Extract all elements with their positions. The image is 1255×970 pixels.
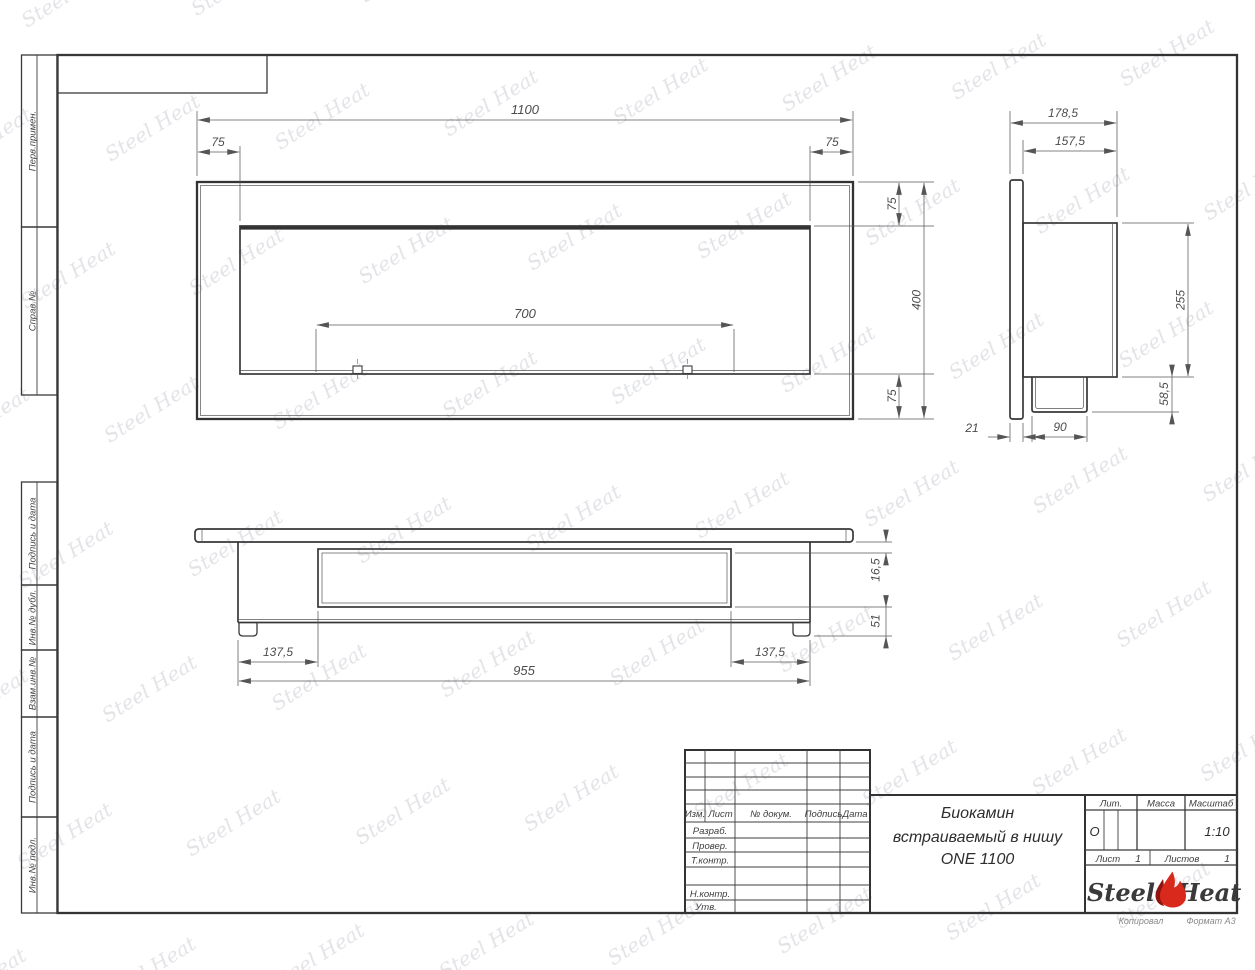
lit-label: Лит.	[1099, 799, 1122, 810]
svg-text:1100: 1100	[511, 102, 540, 117]
margin-label: Подпись и дата	[28, 731, 39, 803]
row-razrab: Разраб.	[693, 826, 727, 837]
row-prover: Провер.	[692, 841, 727, 852]
margin-label: Перв.примен.	[28, 111, 39, 172]
sheets-label: Листов	[1164, 854, 1200, 865]
row-utv: Утв.	[694, 902, 717, 913]
sheet-value: 1	[1135, 853, 1141, 865]
copied-note: Копировал	[1119, 916, 1164, 926]
scale-label: Масштаб	[1189, 799, 1234, 810]
margin-label: Подпись и дата	[28, 498, 39, 570]
lit-value: О	[1089, 824, 1099, 839]
margin-label: Инв.№ дубл.	[28, 590, 39, 646]
svg-text:157,5: 157,5	[1055, 134, 1085, 148]
svg-text:700: 700	[514, 306, 536, 321]
col-date: Дата	[841, 809, 867, 820]
svg-text:21: 21	[964, 421, 978, 435]
svg-text:Биокамин: Биокамин	[941, 805, 1015, 822]
svg-text:137,5: 137,5	[755, 645, 785, 659]
logo-steel: Steel	[1087, 878, 1155, 907]
drawing-sheet: Steel Heat Steel Heat Перв.примен. Справ…	[0, 0, 1255, 970]
svg-text:75: 75	[825, 135, 839, 149]
col-izm: Изм.	[685, 809, 705, 820]
col-doc: № докум.	[750, 809, 792, 820]
svg-text:400: 400	[910, 290, 924, 310]
svg-text:75: 75	[885, 197, 899, 211]
svg-text:ONE 1100: ONE 1100	[941, 851, 1015, 868]
margin-label: Инв.№ подл.	[28, 837, 39, 893]
row-tkontr: Т.контр.	[691, 856, 729, 867]
col-sign: Подпись	[805, 809, 843, 820]
svg-text:16,5: 16,5	[869, 558, 883, 582]
svg-text:58,5: 58,5	[1157, 382, 1171, 406]
scale-value: 1:10	[1204, 824, 1230, 839]
svg-text:75: 75	[885, 389, 899, 403]
margin-label: Справ.№	[28, 291, 39, 332]
svg-text:90: 90	[1053, 420, 1067, 434]
svg-text:51: 51	[869, 614, 883, 627]
svg-text:255: 255	[1174, 290, 1188, 311]
svg-text:955: 955	[513, 663, 535, 678]
svg-text:137,5: 137,5	[263, 645, 293, 659]
format-note: Формат А3	[1186, 916, 1235, 926]
col-list: Лист	[707, 809, 733, 820]
margin-label: Взам.инв.№	[28, 657, 39, 710]
svg-text:178,5: 178,5	[1048, 106, 1078, 120]
drawing-canvas: Steel Heat Steel Heat Перв.примен. Справ…	[0, 0, 1255, 970]
svg-text:встраиваемый в нишу: встраиваемый в нишу	[893, 829, 1063, 846]
row-nkontr: Н.контр.	[690, 889, 730, 900]
massa-label: Масса	[1147, 799, 1175, 810]
svg-text:75: 75	[211, 135, 225, 149]
sheet-label: Лист	[1095, 854, 1121, 865]
sheets-value: 1	[1224, 853, 1230, 865]
